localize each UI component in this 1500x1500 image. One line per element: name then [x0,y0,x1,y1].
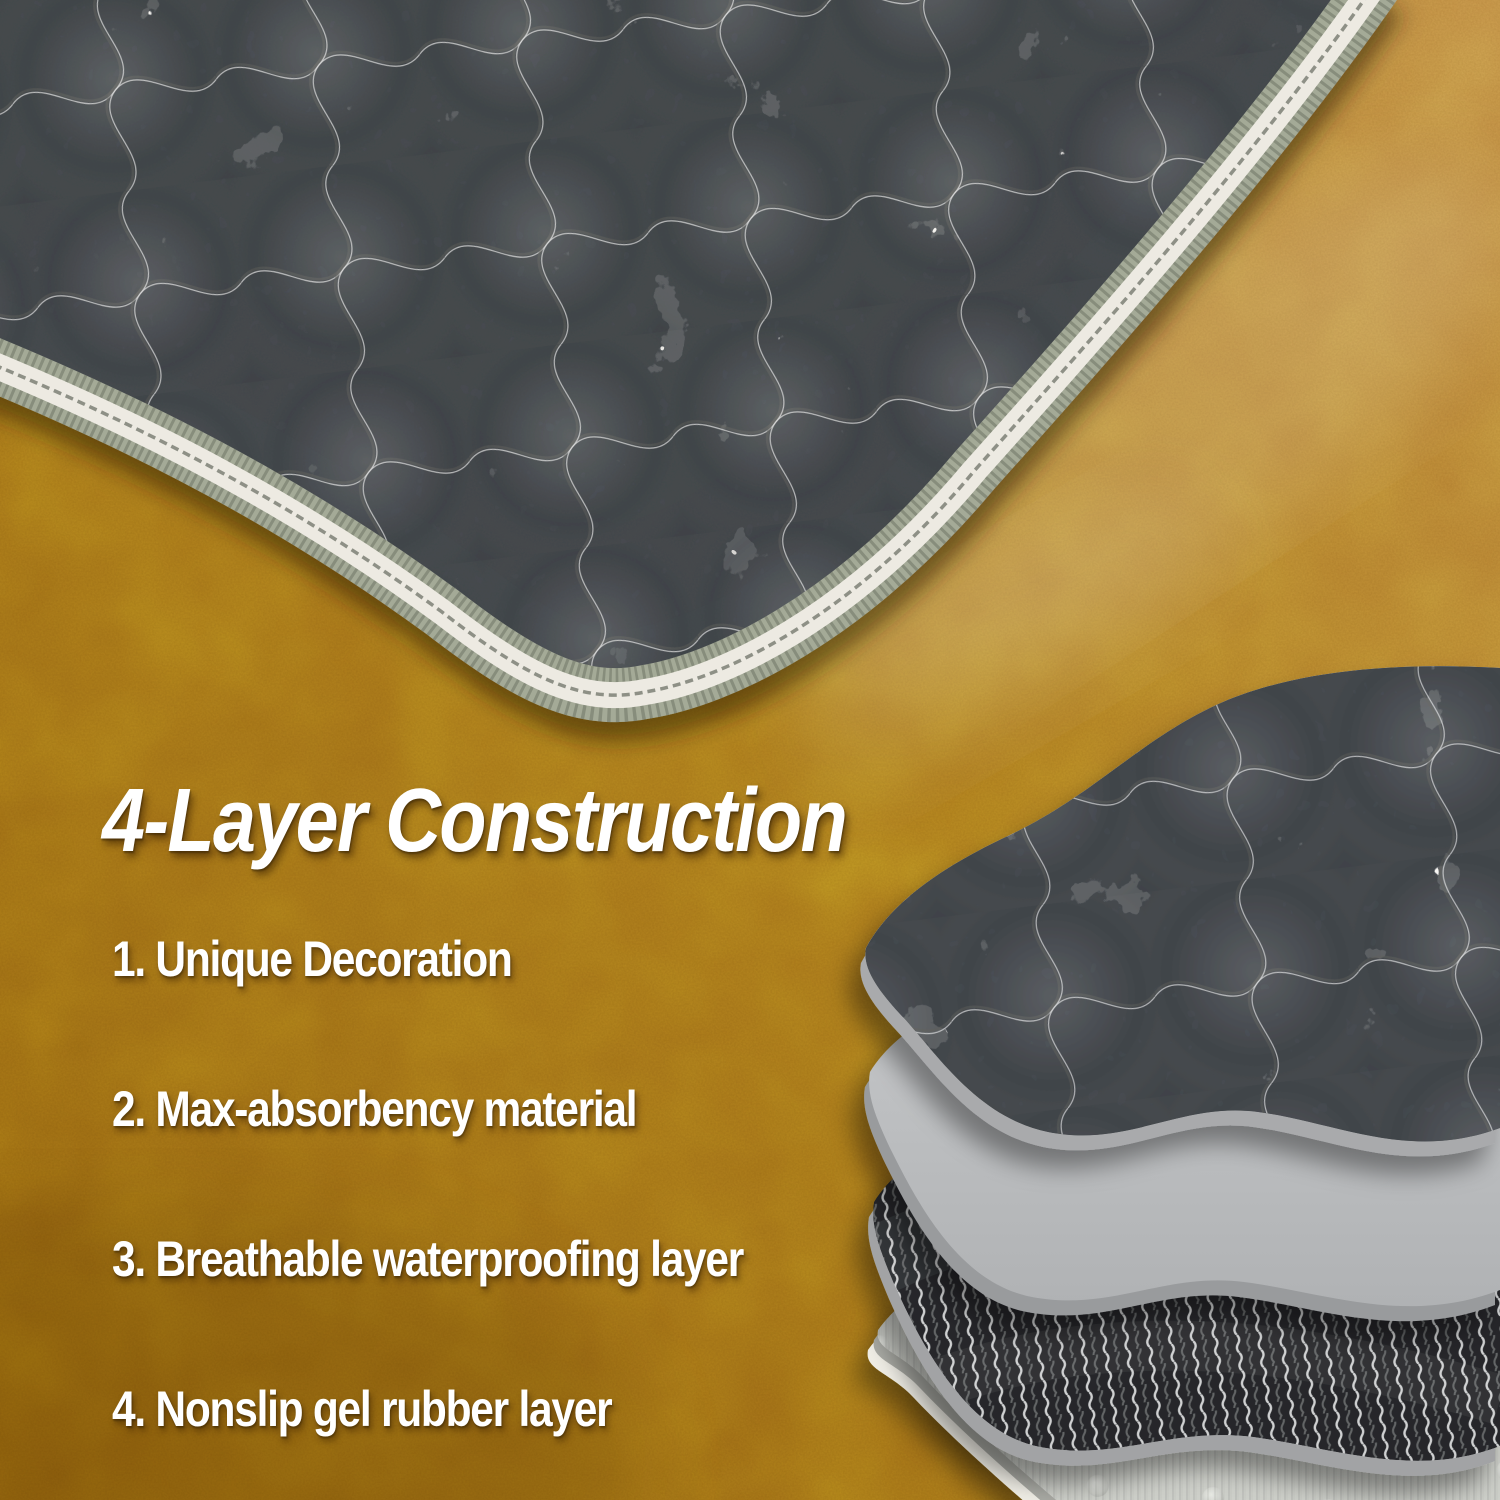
layer-list-item-1: 1. Unique Decoration [112,930,512,988]
product-infographic: 4-Layer Construction 1. Unique Decoratio… [0,0,1500,1500]
layer-list-item-3: 3. Breathable waterproofing layer [112,1230,743,1288]
layer-list-item-2: 2. Max-absorbency material [112,1080,636,1138]
layer-list-item-4: 4. Nonslip gel rubber layer [112,1380,611,1438]
page-title: 4-Layer Construction [102,770,846,873]
